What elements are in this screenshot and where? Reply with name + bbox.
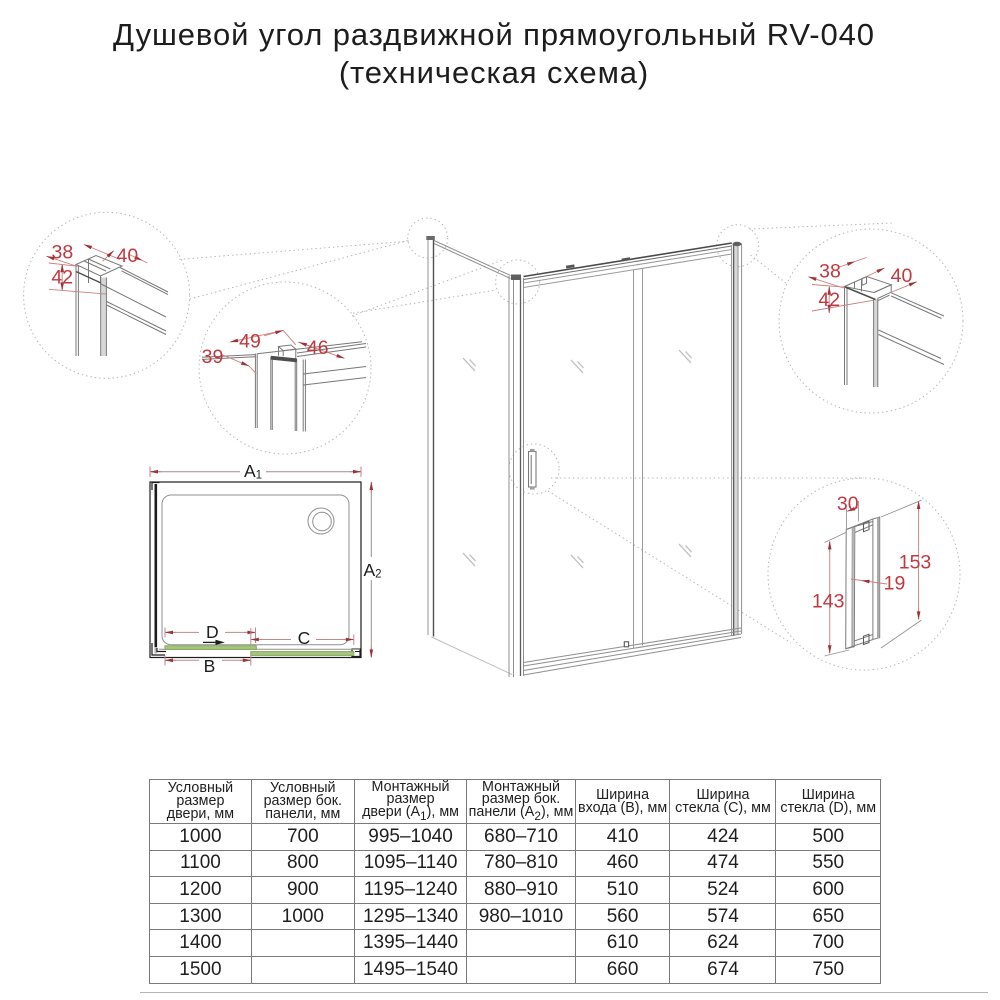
svg-text:C: C <box>298 628 311 648</box>
svg-text:49: 49 <box>239 331 261 353</box>
svg-text:42: 42 <box>818 289 840 311</box>
svg-text:A1: A1 <box>244 461 262 482</box>
svg-text:19: 19 <box>884 573 906 595</box>
svg-text:38: 38 <box>819 261 841 283</box>
svg-text:38: 38 <box>52 242 74 264</box>
svg-text:42: 42 <box>51 266 73 288</box>
svg-text:153: 153 <box>899 552 932 574</box>
svg-text:143: 143 <box>812 591 845 613</box>
svg-text:A2: A2 <box>363 560 381 581</box>
svg-text:40: 40 <box>891 265 913 287</box>
svg-text:D: D <box>206 622 219 642</box>
svg-text:46: 46 <box>307 337 329 359</box>
svg-text:30: 30 <box>837 493 859 515</box>
svg-text:39: 39 <box>202 346 224 368</box>
svg-text:40: 40 <box>117 245 139 267</box>
svg-text:B: B <box>204 656 216 676</box>
